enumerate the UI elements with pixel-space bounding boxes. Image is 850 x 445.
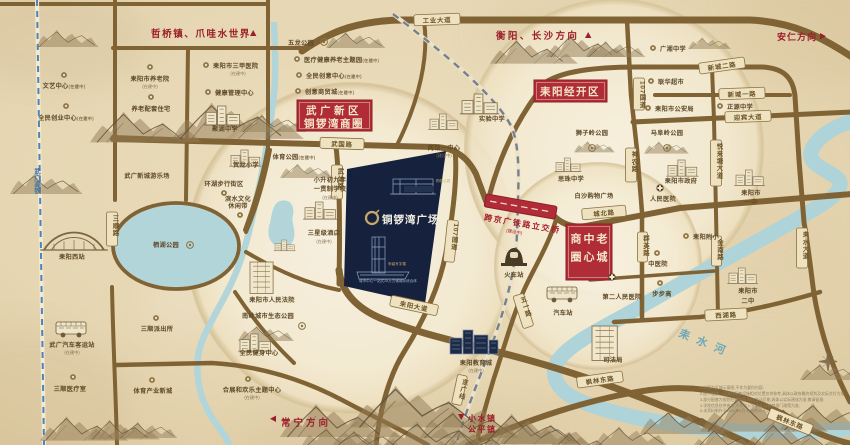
svg-text:全民健身中心: 全民健身中心 — [239, 349, 279, 357]
svg-text:狮子岭公园: 狮子岭公园 — [575, 129, 608, 137]
svg-text:神农路: 神农路 — [631, 150, 639, 173]
svg-text:文艺中心(在建中): 文艺中心(在建中) — [43, 82, 86, 90]
svg-text:武广新区: 武广新区 — [306, 104, 362, 117]
svg-text:白沙购物广场: 白沙购物广场 — [575, 192, 614, 200]
svg-text:(在建中): (在建中) — [142, 83, 158, 90]
svg-text:环湖步行街区: 环湖步行街区 — [205, 180, 244, 188]
svg-text:武广汽车客运站: 武广汽车客运站 — [49, 341, 95, 349]
svg-text:金南路: 金南路 — [716, 238, 724, 261]
svg-text:衡阳、长沙方向: 衡阳、长沙方向 — [496, 30, 579, 42]
svg-text:商圈: 商圈 — [569, 232, 582, 269]
svg-text:三顺路: 三顺路 — [112, 215, 119, 237]
svg-text:养老配套住宅: 养老配套住宅 — [131, 105, 171, 113]
svg-text:常宁方向: 常宁方向 — [281, 417, 331, 429]
svg-text:甲级写字楼: 甲级写字楼 — [388, 261, 406, 266]
svg-text:栖湖公园: 栖湖公园 — [153, 241, 179, 249]
svg-text:(在建中): (在建中) — [244, 394, 260, 401]
svg-text:城市中心一站式25万方微城际综合体: 城市中心一站式25万方微城际综合体 — [359, 278, 417, 283]
svg-text:(在建中): (在建中) — [316, 238, 332, 245]
svg-text:汽车站: 汽车站 — [553, 309, 573, 317]
svg-text:一中: 一中 — [745, 198, 758, 206]
svg-text:火车站: 火车站 — [504, 271, 524, 279]
svg-text:中心: 中心 — [582, 232, 595, 269]
svg-text:N: N — [827, 346, 830, 351]
svg-text:三顺医疗室: 三顺医疗室 — [54, 385, 86, 393]
svg-text:安仁方向: 安仁方向 — [777, 31, 817, 42]
svg-text:铜锣湾广场: 铜锣湾广场 — [382, 213, 440, 226]
svg-text:正源中学: 正源中学 — [727, 103, 753, 111]
svg-text:体育公园(在建中): 体育公园(在建中) — [273, 153, 316, 161]
svg-text:中医院: 中医院 — [648, 260, 668, 268]
svg-text:耒水大道: 耒水大道 — [802, 230, 809, 261]
svg-text:(在建中): (在建中) — [230, 70, 246, 77]
svg-text:一贯制学校: 一贯制学校 — [314, 185, 347, 193]
svg-text:耒阳经开区: 耒阳经开区 — [540, 85, 600, 98]
svg-text:全民创意中心(在建中): 全民创意中心(在建中) — [305, 72, 362, 80]
svg-text:两馆一中心: 两馆一中心 — [428, 144, 461, 152]
svg-text:体育产业新城: 体育产业新城 — [134, 387, 173, 395]
svg-text:马阜岭公园: 马阜岭公园 — [651, 129, 683, 137]
svg-text:耒阳市人民法院: 耒阳市人民法院 — [249, 296, 295, 304]
svg-text:3.部分配套为规划在建内容,存在变动可能,具体以实际建成为准: 3.部分配套为规划在建内容,存在变动可能,具体以实际建成为准,敬请留意; — [700, 397, 824, 402]
svg-text:耒阳市政府: 耒阳市政府 — [665, 177, 698, 185]
svg-text:武广新城游乐场: 武广新城游乐场 — [124, 172, 169, 180]
svg-text:思珠中学: 思珠中学 — [558, 175, 584, 183]
svg-text:老城: 老城 — [595, 232, 609, 269]
svg-text:耒阳市公安局: 耒阳市公安局 — [655, 105, 694, 113]
svg-text:公平镇: 公平镇 — [468, 424, 497, 434]
svg-text:滨水文化: 滨水文化 — [225, 195, 251, 203]
svg-text:人民医院: 人民医院 — [650, 195, 676, 203]
svg-text:耒阳市三甲医院: 耒阳市三甲医院 — [213, 62, 259, 70]
svg-text:第二人民医院: 第二人民医院 — [602, 293, 642, 301]
svg-text:107国道: 107国道 — [639, 81, 646, 109]
svg-text:耒阳市养老院: 耒阳市养老院 — [131, 75, 170, 83]
svg-text:五龙公园: 五龙公园 — [288, 39, 314, 47]
svg-text:2.图中道路、河流及配套设施相对位置仅供参考,具体以政府最终: 2.图中道路、河流及配套设施相对位置仅供参考,具体以政府最终规划及实际交付为准; — [700, 391, 845, 396]
svg-text:小水镇: 小水镇 — [467, 413, 497, 423]
svg-text:耒阳市: 耒阳市 — [741, 189, 761, 197]
svg-text:(在建中): (在建中) — [468, 367, 484, 374]
svg-text:联华超市: 联华超市 — [658, 78, 684, 86]
svg-text:(建设中): (建设中) — [436, 152, 452, 159]
svg-text:哲桥镇、爪哇水世界: 哲桥镇、爪哇水世界 — [151, 28, 251, 40]
svg-text:医疗健康养老主题园(在建中): 医疗健康养老主题园(在建中) — [304, 56, 380, 64]
svg-text:(在建中): (在建中) — [64, 349, 80, 356]
svg-text:步步高: 步步高 — [652, 290, 671, 298]
svg-text:贺龙小学: 贺龙小学 — [232, 161, 259, 169]
svg-text:铜锣湾商圈: 铜锣湾商圈 — [304, 117, 364, 130]
svg-text:广湘中学: 广湘中学 — [660, 45, 686, 53]
svg-text:三顺派出所: 三顺派出所 — [141, 325, 174, 333]
svg-text:购物公园: 购物公园 — [436, 178, 451, 183]
svg-text:三星级酒店: 三星级酒店 — [308, 229, 340, 237]
svg-text:健康管理中心: 健康管理中心 — [215, 89, 254, 97]
svg-text:二中: 二中 — [742, 297, 755, 305]
svg-text:耒阳教育城: 耒阳教育城 — [460, 359, 493, 367]
svg-text:合展和欢乐主题中心: 合展和欢乐主题中心 — [223, 386, 282, 394]
svg-text:耒阳市: 耒阳市 — [738, 287, 758, 295]
svg-text:小升初九年: 小升初九年 — [313, 176, 347, 184]
svg-text:司法局: 司法局 — [603, 356, 622, 364]
svg-text:全民创业中心(在建中): 全民创业中心(在建中) — [37, 114, 94, 122]
svg-text:群英路: 群英路 — [642, 234, 650, 257]
svg-text:南岭城市生态公园: 南岭城市生态公园 — [242, 312, 294, 320]
svg-text:休闲带: 休闲带 — [227, 202, 248, 210]
svg-text:创意商贸城(在建中): 创意商贸城(在建中) — [304, 88, 355, 96]
svg-text:耒阳西站: 耒阳西站 — [59, 253, 85, 261]
svg-text:悦来塘大道: 悦来塘大道 — [716, 142, 724, 180]
svg-text:耒阳附小: 耒阳附小 — [693, 233, 719, 241]
svg-text:实验中学: 实验中学 — [479, 115, 505, 123]
svg-text:1.本图为区域示意图,不作为要约内容;: 1.本图为区域示意图,不作为要约内容; — [700, 385, 764, 390]
svg-text:聚湖中学: 聚湖中学 — [211, 125, 238, 133]
svg-text:5.本资料制作于2020年8月,有效期30天。: 5.本资料制作于2020年8月,有效期30天。 — [700, 408, 770, 413]
svg-text:(在建中): (在建中) — [322, 194, 338, 201]
